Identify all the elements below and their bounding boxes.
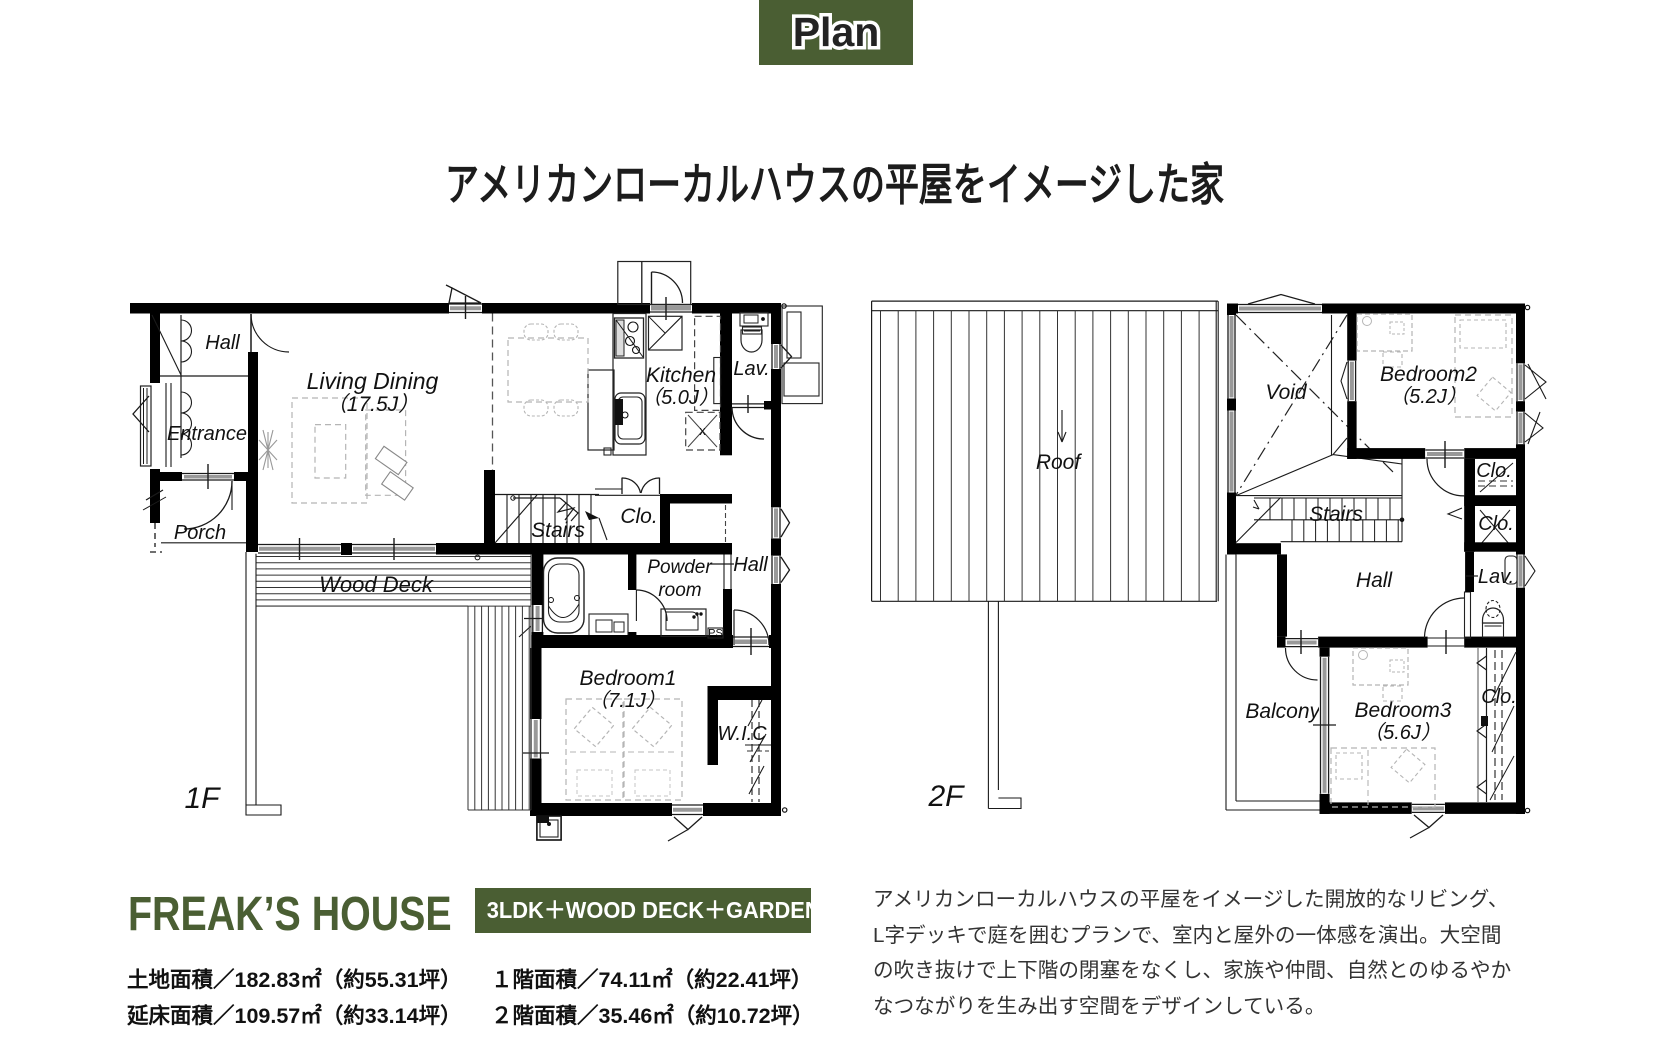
svg-text:Clo.: Clo. <box>1476 460 1512 482</box>
svg-text:1F: 1F <box>184 782 221 815</box>
svg-text:Stairs: Stairs <box>531 519 585 542</box>
svg-text:x: x <box>699 423 706 438</box>
svg-text:（17.5J）: （17.5J） <box>326 393 419 416</box>
svg-text:Roof: Roof <box>1036 451 1083 474</box>
svg-text:Hall: Hall <box>205 332 240 354</box>
svg-text:Hall: Hall <box>733 554 768 576</box>
svg-text:W.I.C: W.I.C <box>717 723 767 745</box>
svg-text:Clo.: Clo. <box>1481 686 1517 708</box>
svg-text:Clo.: Clo. <box>1478 513 1514 535</box>
svg-text:Powder: Powder <box>647 557 712 578</box>
svg-text:Clo.: Clo. <box>620 505 657 528</box>
svg-text:（7.1J）: （7.1J） <box>588 689 666 712</box>
svg-text:Hall: Hall <box>1356 569 1394 592</box>
svg-text:Void: Void <box>1265 381 1308 404</box>
svg-text:Lav.: Lav. <box>733 358 769 380</box>
svg-text:Lav.: Lav. <box>1478 566 1514 588</box>
svg-text:Porch: Porch <box>174 522 226 544</box>
svg-text:Balcony: Balcony <box>1245 700 1321 723</box>
svg-text:Bedroom1: Bedroom1 <box>580 667 677 690</box>
svg-text:Bedroom2: Bedroom2 <box>1380 363 1477 386</box>
svg-text:（5.0J）: （5.0J） <box>641 386 719 409</box>
svg-text:Bedroom3: Bedroom3 <box>1355 699 1452 722</box>
svg-text:（5.6J）: （5.6J） <box>1363 721 1441 744</box>
svg-text:room: room <box>658 580 701 601</box>
svg-text:Living Dining: Living Dining <box>307 368 439 394</box>
svg-text:PS: PS <box>708 628 723 640</box>
svg-text:Entrance: Entrance <box>167 423 247 445</box>
svg-text:Stairs: Stairs <box>1309 503 1363 526</box>
svg-text:（5.2J）: （5.2J） <box>1389 385 1467 408</box>
svg-text:Kitchen: Kitchen <box>646 364 716 387</box>
svg-text:2F: 2F <box>927 780 965 813</box>
svg-text:Wood Deck: Wood Deck <box>319 572 434 597</box>
